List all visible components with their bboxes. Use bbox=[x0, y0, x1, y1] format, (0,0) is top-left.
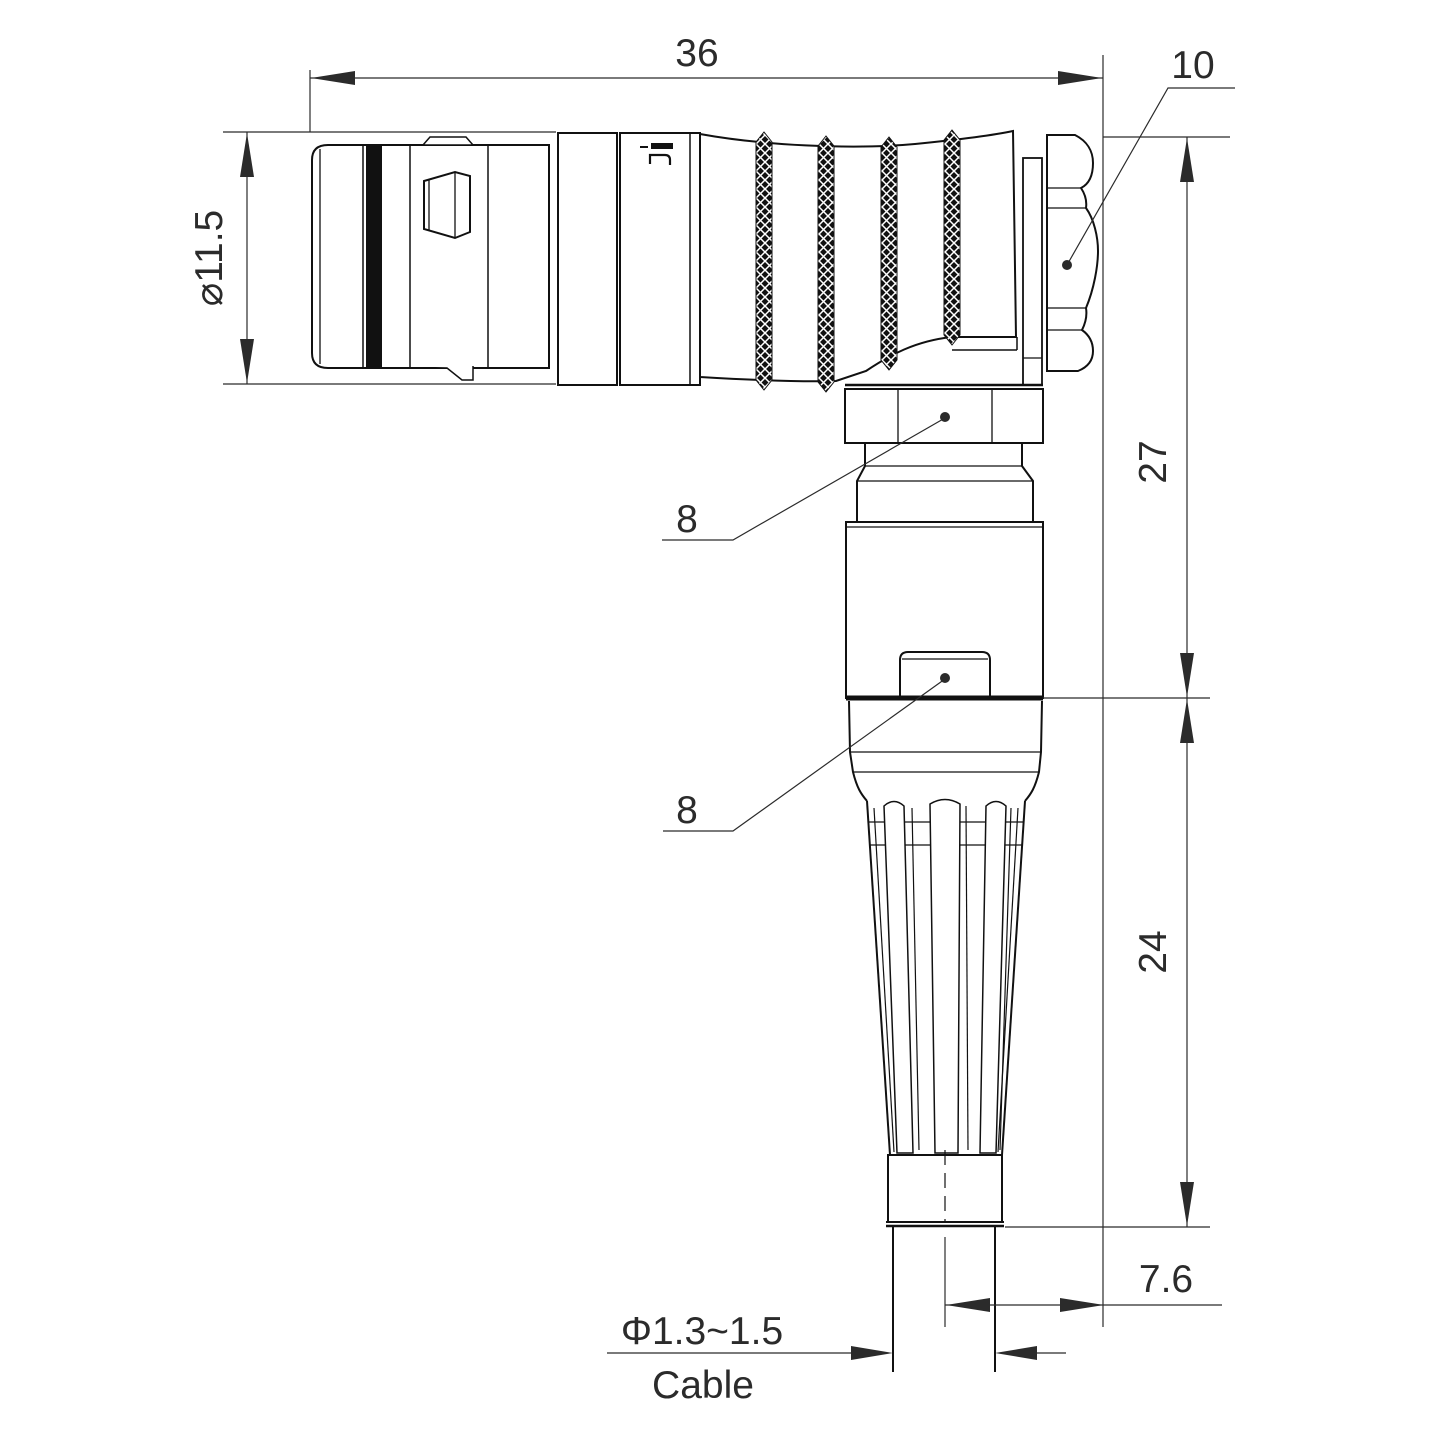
connector-dimension-drawing: Lightany bbox=[0, 0, 1440, 1440]
dim-10-label: 10 bbox=[1171, 44, 1214, 87]
dim-11-5-label: ⌀11.5 bbox=[188, 210, 231, 307]
dim-24-label: 24 bbox=[1132, 930, 1175, 973]
dim-7-6-label: 7.6 bbox=[1139, 1258, 1193, 1301]
ferrule bbox=[886, 1155, 1004, 1226]
back-nut bbox=[1047, 135, 1098, 371]
vertical-body bbox=[845, 385, 1043, 1372]
body-block bbox=[846, 522, 1043, 698]
coupling-shell bbox=[558, 133, 617, 385]
bottom-notch bbox=[423, 366, 473, 380]
dim-36-label: 36 bbox=[675, 32, 718, 75]
dim-27-label: 27 bbox=[1132, 440, 1175, 483]
callout-8-latch-label: 8 bbox=[676, 789, 698, 832]
seal-band bbox=[366, 145, 382, 368]
boot-rib bbox=[930, 800, 960, 1154]
dim-cable: Φ1.3~1.5 Cable bbox=[607, 1310, 1066, 1407]
knurled-grip bbox=[700, 131, 1016, 381]
callout-8-nut-label: 8 bbox=[676, 498, 698, 541]
neck bbox=[857, 443, 1033, 522]
boot-rib bbox=[884, 802, 913, 1154]
dim-24: 24 bbox=[1005, 698, 1210, 1227]
dim-27: 27 bbox=[1103, 137, 1230, 698]
technical-drawing-page: Lightany bbox=[0, 0, 1440, 1440]
dim-36: 36 bbox=[310, 32, 1103, 132]
front-view bbox=[312, 130, 1098, 392]
dim-cable-diameter-label: Φ1.3~1.5 bbox=[621, 1310, 783, 1353]
cable bbox=[893, 1226, 995, 1372]
back-ring bbox=[1023, 158, 1042, 385]
bayonet-window bbox=[424, 172, 470, 238]
cable-label: Cable bbox=[652, 1364, 754, 1407]
dim-7-6: 7.6 bbox=[945, 1237, 1222, 1327]
ring-section bbox=[620, 133, 700, 385]
bayonet-nub bbox=[423, 137, 473, 145]
strain-relief-boot bbox=[849, 701, 1042, 1155]
